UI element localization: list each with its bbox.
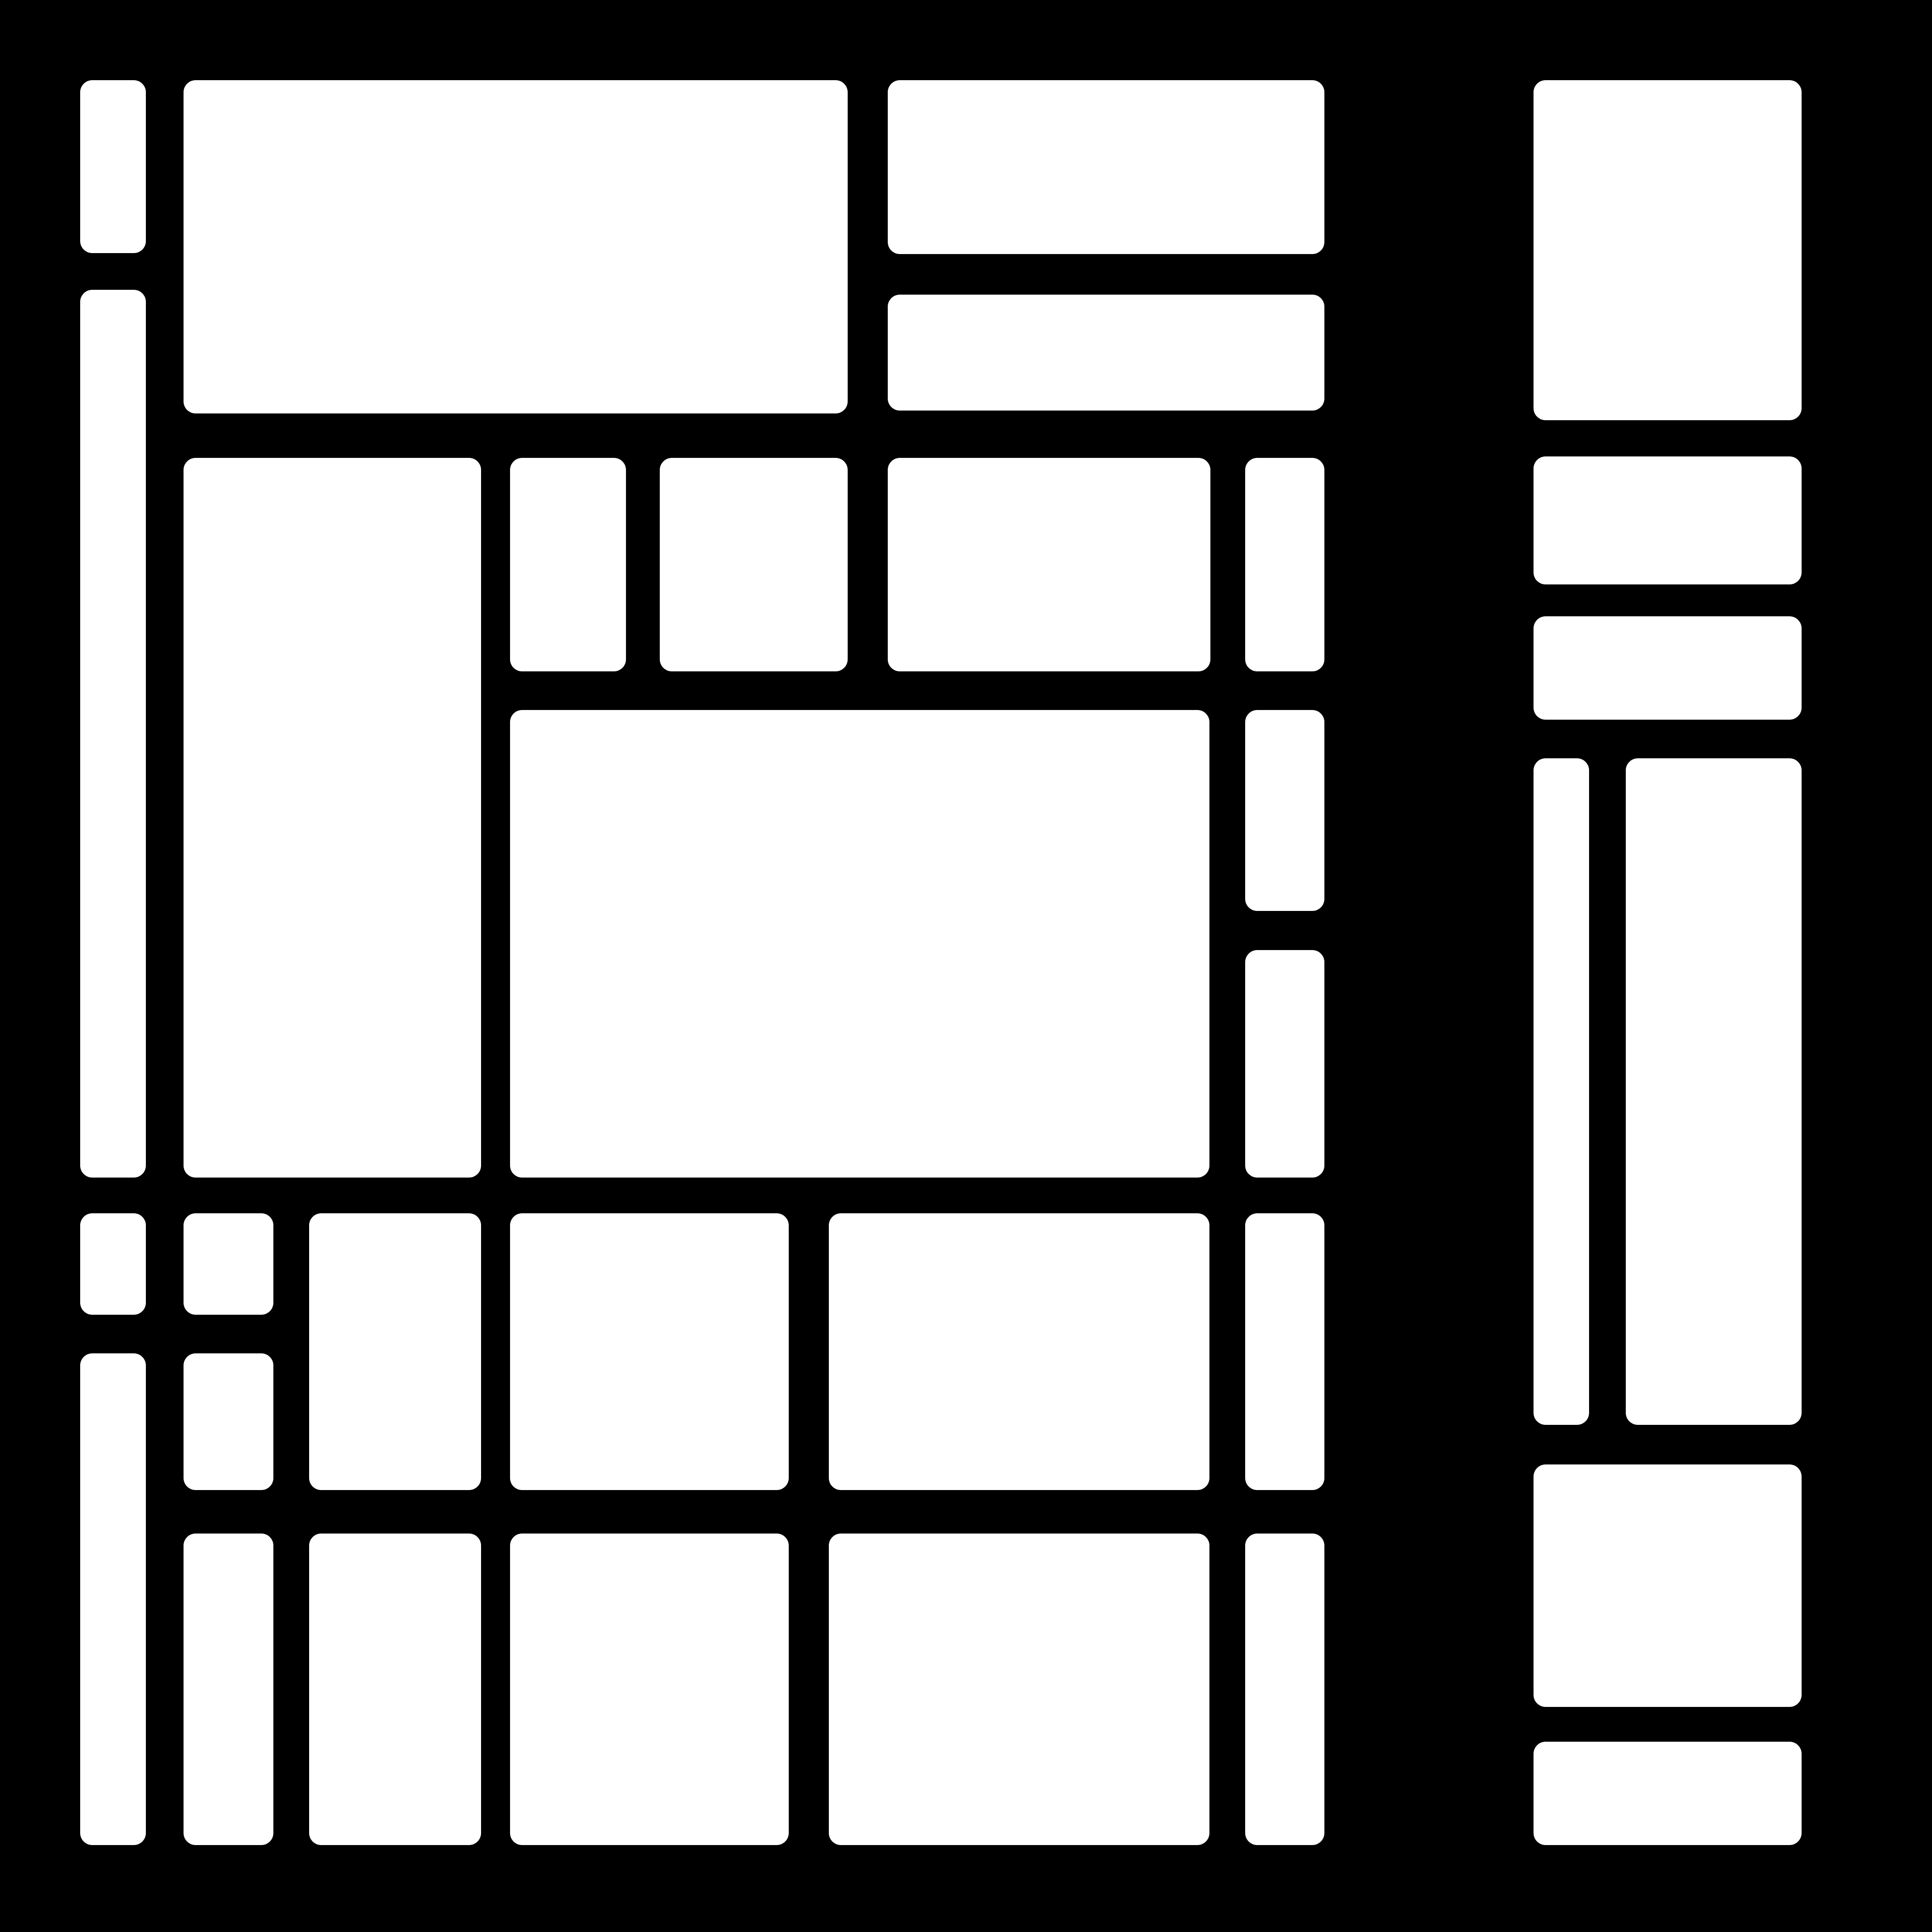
sidebar-strip-narrow [1534, 758, 1589, 1425]
sidebar-strip-wide [1626, 758, 1802, 1425]
sidebar-tile-3 [1534, 616, 1802, 720]
header-right-upper [888, 80, 1324, 254]
row3-tile-col3 [309, 1213, 481, 1490]
row2-tile-wide [888, 458, 1210, 671]
row4-tile-col5 [829, 1534, 1209, 1845]
column-tall-left [184, 458, 481, 1178]
row4-tile-col2 [184, 1534, 273, 1845]
row2-tile-mid [660, 458, 848, 671]
row2-strip-right [1245, 458, 1324, 671]
row3-tile-col2-small [184, 1213, 273, 1315]
left-rail-top [80, 80, 146, 253]
row3-strip-right [1245, 1213, 1324, 1490]
row4-tile-col3 [309, 1534, 481, 1845]
row3-tile-col4 [510, 1213, 789, 1490]
row4-tile-col4 [510, 1534, 789, 1845]
content-strip-lower [1245, 950, 1324, 1178]
sidebar-tile-5 [1534, 1464, 1802, 1707]
content-main [510, 710, 1209, 1178]
left-rail-bottom [80, 1353, 146, 1845]
sidebar-tile-2 [1534, 456, 1802, 584]
sidebar-tile-top [1534, 80, 1802, 420]
row3-tile-col5 [829, 1213, 1209, 1490]
row2-tile-small [510, 458, 626, 671]
row4-strip-right [1245, 1534, 1324, 1845]
header-right-lower [888, 295, 1324, 411]
sidebar-tile-6 [1534, 1742, 1802, 1845]
header-main [184, 80, 848, 413]
left-rail-tall [80, 290, 146, 1178]
content-strip-upper [1245, 710, 1324, 911]
row3-tile-col2 [184, 1353, 273, 1490]
left-rail-small [80, 1213, 146, 1315]
mosaic-canvas [0, 0, 1932, 1932]
